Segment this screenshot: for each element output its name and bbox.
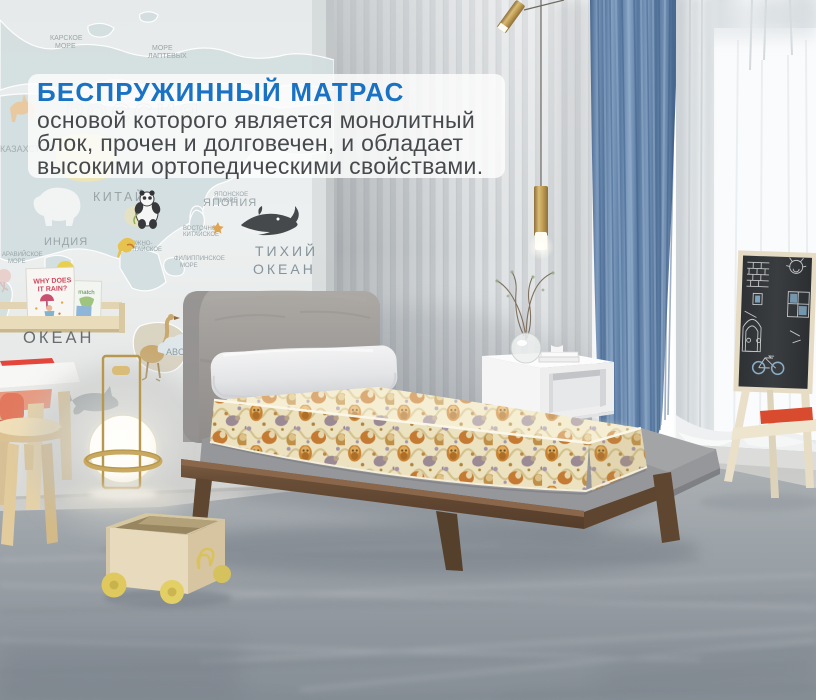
svg-text:match: match	[78, 290, 94, 296]
svg-text:ЛАПТЕВЫХ: ЛАПТЕВЫХ	[148, 53, 187, 60]
svg-text:МОРЕ: МОРЕ	[8, 259, 26, 265]
svg-text:АРАВИЙСКОЕ: АРАВИЙСКОЕ	[2, 250, 43, 258]
svg-text:WHY DOES: WHY DOES	[33, 277, 72, 285]
svg-text:ИНДИЯ: ИНДИЯ	[44, 236, 88, 248]
svg-text:МОРЕ: МОРЕ	[180, 263, 198, 269]
svg-text:КИТАЙСКОЕ: КИТАЙСКОЕ	[183, 230, 219, 238]
svg-text:КАРСКОЕ: КАРСКОЕ	[50, 35, 83, 42]
svg-text:IT RAIN?: IT RAIN?	[38, 285, 68, 293]
svg-text:БЕСПРУЖИННЫЙ МАТРАС: БЕСПРУЖИННЫЙ МАТРАС	[37, 77, 405, 107]
svg-text:МОРЕ: МОРЕ	[55, 43, 76, 50]
svg-text:ОКЕАН: ОКЕАН	[253, 261, 316, 277]
svg-text:МОРЕ: МОРЕ	[220, 198, 238, 204]
svg-text:высокими ортопедическими свойс: высокими ортопедическими свойствами.	[37, 153, 483, 179]
svg-text:ФИЛИППИНСКОЕ: ФИЛИППИНСКОЕ	[174, 256, 225, 262]
svg-text:МОРЕ: МОРЕ	[152, 45, 173, 52]
svg-text:ТИХИЙ: ТИХИЙ	[255, 242, 318, 259]
svg-text:ОКЕАН: ОКЕАН	[23, 329, 94, 347]
svg-text:КИТАЙ: КИТАЙ	[93, 189, 146, 204]
svg-text:ABC: ABC	[166, 347, 185, 357]
